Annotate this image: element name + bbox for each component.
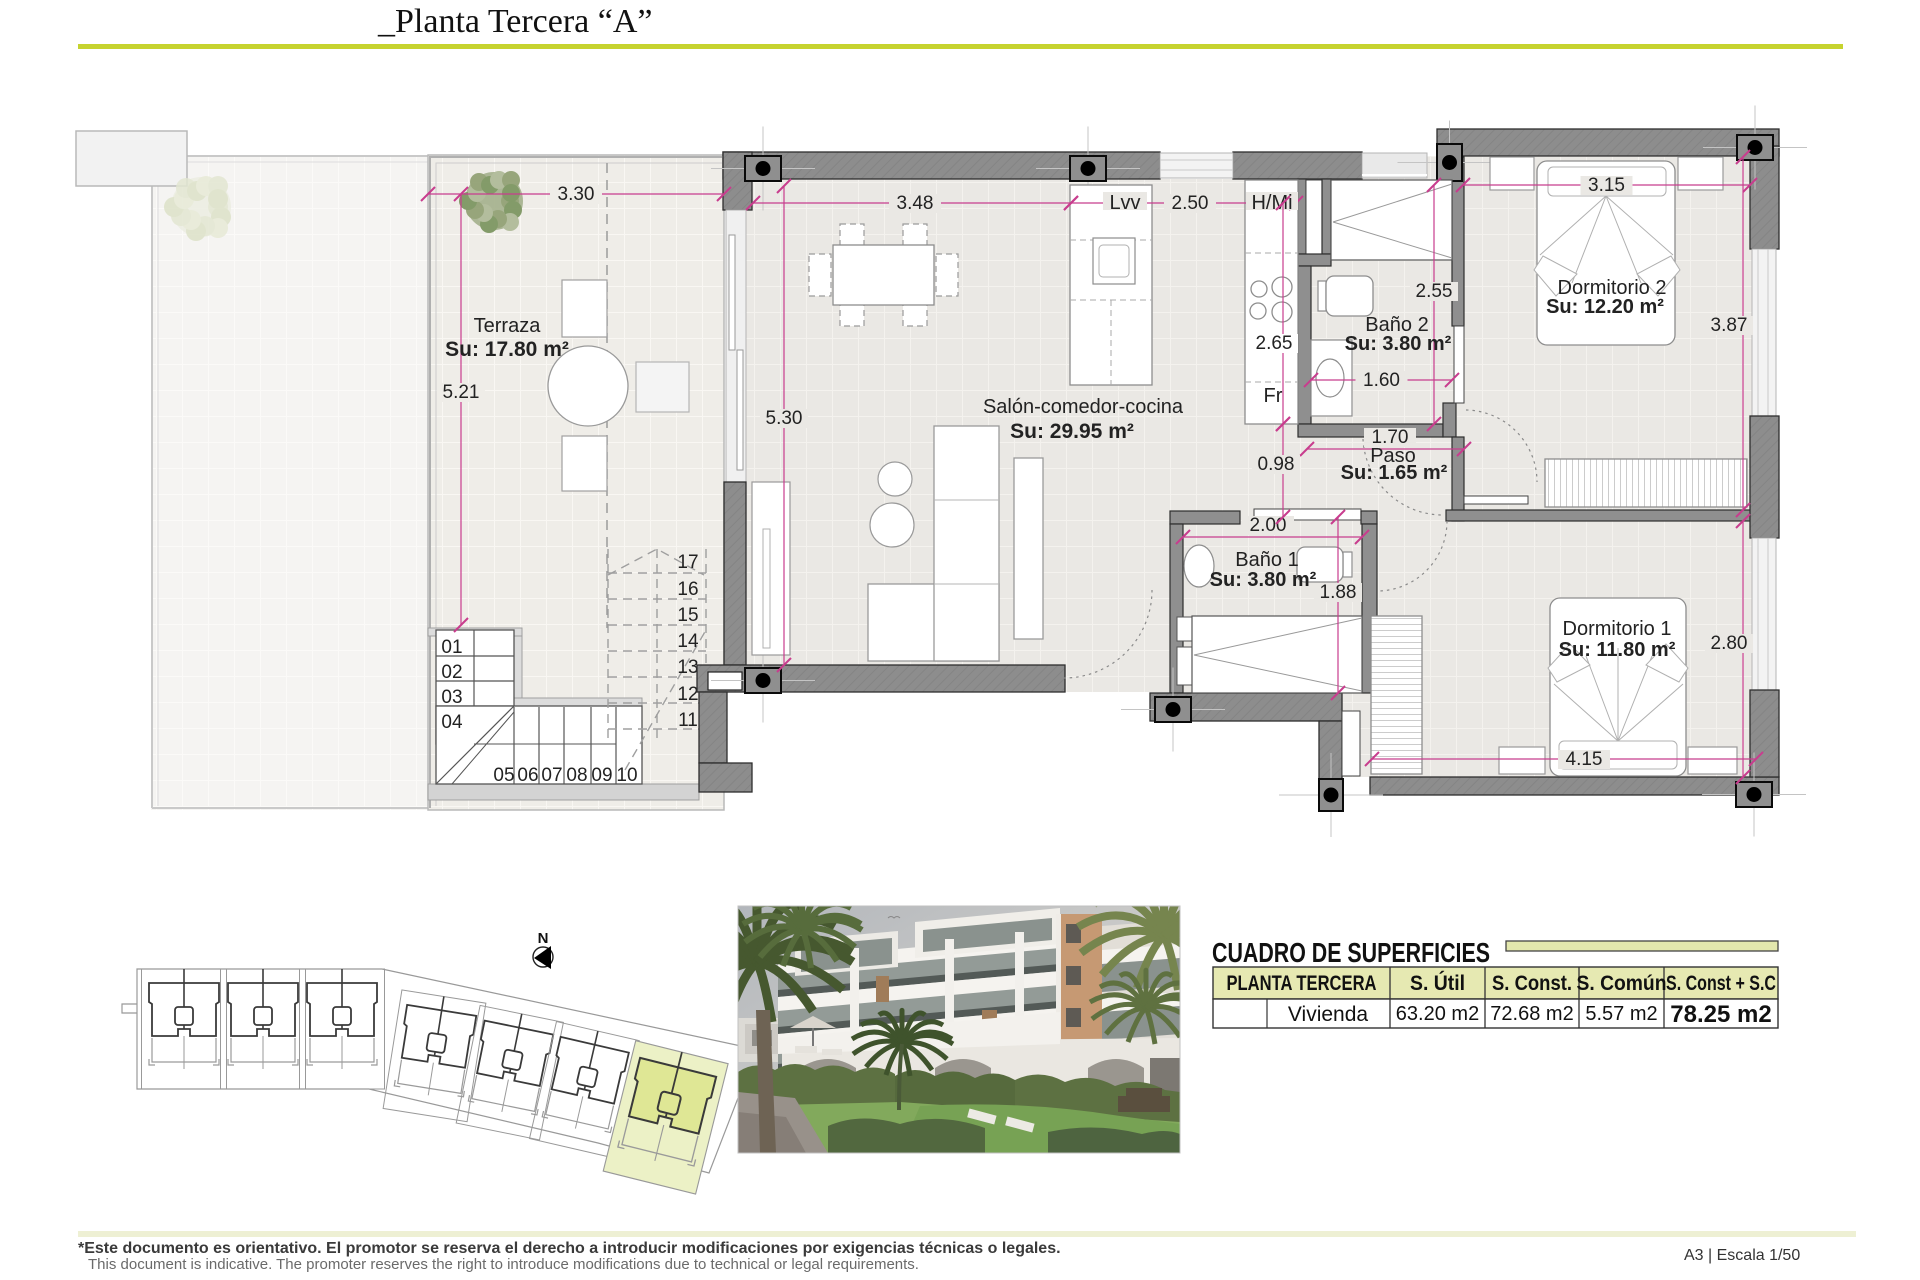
svg-text:3.30: 3.30 <box>558 184 595 205</box>
svg-text:78.25 m2: 78.25 m2 <box>1670 1001 1771 1028</box>
svg-text:3.48: 3.48 <box>897 193 934 214</box>
svg-text:0.98: 0.98 <box>1258 454 1295 475</box>
svg-text:5.21: 5.21 <box>443 382 480 403</box>
svg-text:N: N <box>538 930 549 947</box>
svg-text:S. Const.: S. Const. <box>1492 972 1572 995</box>
svg-text:09: 09 <box>591 765 612 786</box>
svg-text:13: 13 <box>677 657 698 678</box>
svg-text:S. Común: S. Común <box>1577 972 1667 995</box>
svg-text:Terraza: Terraza <box>474 315 542 337</box>
svg-text:12: 12 <box>677 684 698 705</box>
svg-text:2.80: 2.80 <box>1711 633 1748 654</box>
svg-text:01: 01 <box>441 637 462 658</box>
svg-text:10: 10 <box>616 765 637 786</box>
svg-text:5.57 m2: 5.57 m2 <box>1585 1003 1657 1025</box>
svg-text:17: 17 <box>677 552 698 573</box>
svg-text:Dormitorio 1: Dormitorio 1 <box>1563 618 1672 640</box>
svg-text:Su: 12.20 m²: Su: 12.20 m² <box>1546 296 1664 318</box>
svg-text:08: 08 <box>566 765 587 786</box>
svg-text:A3 | Escala 1/50: A3 | Escala 1/50 <box>1684 1247 1800 1264</box>
svg-text:S. Const + S.C: S. Const + S.C <box>1666 972 1776 995</box>
svg-text:Su: 3.80 m²: Su: 3.80 m² <box>1210 569 1317 591</box>
svg-text:Lvv: Lvv <box>1109 192 1140 214</box>
svg-text:1.88: 1.88 <box>1320 582 1357 603</box>
svg-text:15: 15 <box>677 605 698 626</box>
svg-text:1.60: 1.60 <box>1363 370 1400 391</box>
svg-text:02: 02 <box>441 662 462 683</box>
svg-text:Su: 17.80 m²: Su: 17.80 m² <box>445 338 569 361</box>
svg-text:07: 07 <box>541 765 562 786</box>
svg-text:S. Útil: S. Útil <box>1410 971 1465 995</box>
svg-text:3.15: 3.15 <box>1588 175 1625 196</box>
svg-text:2.55: 2.55 <box>1416 281 1453 302</box>
svg-text:11: 11 <box>678 710 698 731</box>
svg-text:Fr: Fr <box>1264 385 1283 407</box>
svg-text:PLANTA TERCERA: PLANTA TERCERA <box>1227 972 1377 995</box>
svg-text:63.20 m2: 63.20 m2 <box>1396 1003 1479 1025</box>
svg-text:This document is indicative. T: This document is indicative. The promote… <box>88 1256 919 1273</box>
svg-text:Su: 1.65 m²: Su: 1.65 m² <box>1341 462 1448 484</box>
svg-text:4.15: 4.15 <box>1566 749 1603 770</box>
svg-text:06: 06 <box>517 765 538 786</box>
svg-text:Baño 1: Baño 1 <box>1235 549 1298 571</box>
svg-text:Su: 3.80 m²: Su: 3.80 m² <box>1345 333 1452 355</box>
svg-text:14: 14 <box>677 631 699 652</box>
svg-text:16: 16 <box>677 579 698 600</box>
svg-text:Su: 29.95 m²: Su: 29.95 m² <box>1010 420 1134 443</box>
svg-text:Su: 11.80 m²: Su: 11.80 m² <box>1559 639 1676 661</box>
svg-text:Vivienda: Vivienda <box>1288 1003 1368 1026</box>
svg-text:72.68 m2: 72.68 m2 <box>1490 1003 1573 1025</box>
svg-text:05: 05 <box>493 765 514 786</box>
svg-text:5.30: 5.30 <box>766 408 803 429</box>
svg-text:_Planta Tercera “A”: _Planta Tercera “A” <box>377 3 653 40</box>
svg-text:2.65: 2.65 <box>1256 333 1293 354</box>
svg-text:*Este documento es orientativo: *Este documento es orientativo. El promo… <box>78 1240 1061 1257</box>
svg-text:H/Mi: H/Mi <box>1251 192 1292 214</box>
svg-text:03: 03 <box>441 687 462 708</box>
svg-text:CUADRO DE SUPERFICIES: CUADRO DE SUPERFICIES <box>1212 937 1490 968</box>
svg-text:3.87: 3.87 <box>1711 315 1748 336</box>
svg-text:2.50: 2.50 <box>1172 193 1209 214</box>
svg-text:Salón-comedor-cocina: Salón-comedor-cocina <box>983 396 1184 418</box>
svg-text:04: 04 <box>441 712 463 733</box>
